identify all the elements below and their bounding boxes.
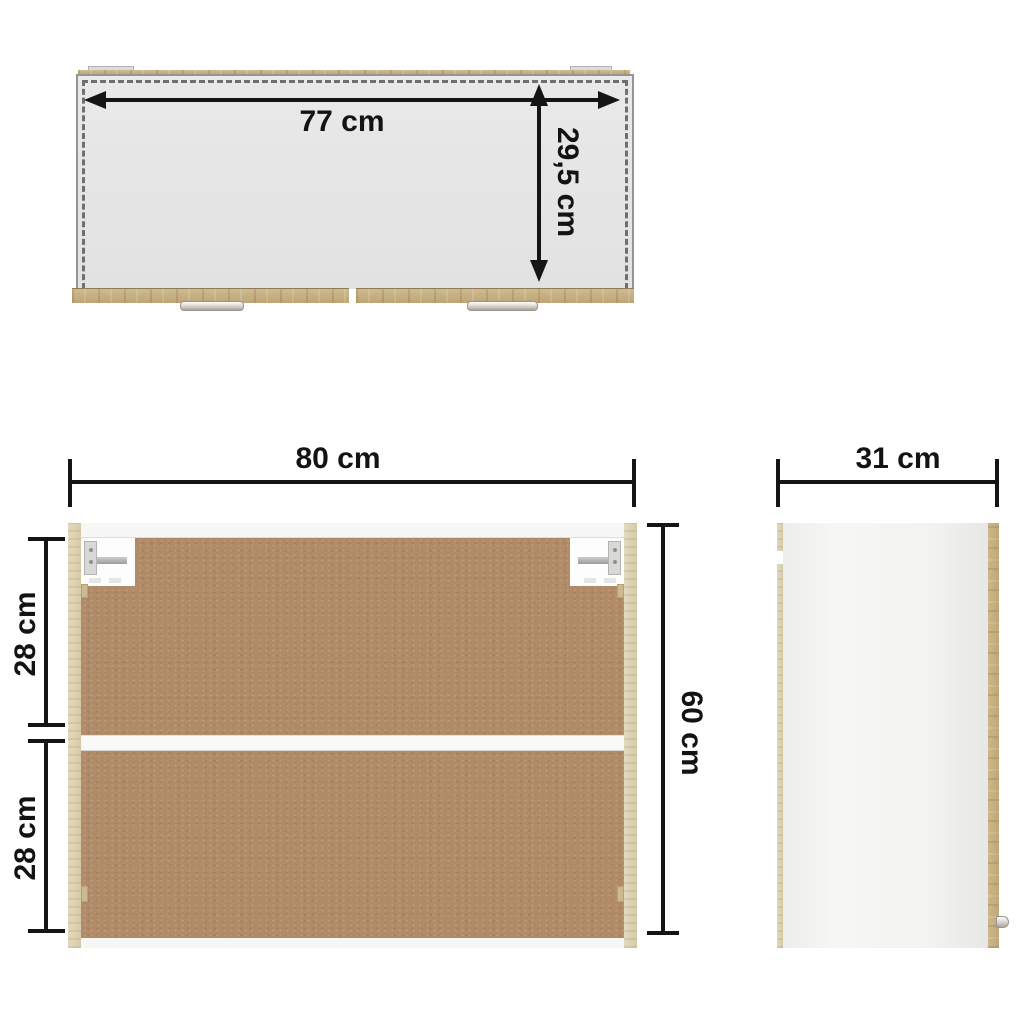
bracket-screw-icon: [613, 560, 617, 564]
bracket-rail: [578, 557, 608, 564]
arrowhead-down-icon: [530, 260, 548, 282]
dimension-line: [44, 739, 48, 933]
height-dimension-label: 60 cm: [676, 690, 706, 775]
bracket-slot: [109, 578, 121, 583]
dimension-tick-right: [632, 459, 636, 507]
bracket-slot: [89, 578, 101, 583]
front-side-panel-right: [624, 523, 637, 948]
upper-compartment-label: 28 cm: [11, 591, 41, 676]
bracket-rail: [97, 557, 127, 564]
front-side-panel-left: [68, 523, 81, 948]
depth-dimension-label: 29,5 cm: [552, 127, 582, 237]
arrowhead-right-icon: [598, 91, 620, 109]
bracket-slot: [604, 578, 616, 583]
middle-shelf: [81, 735, 624, 751]
bracket-screw-icon: [613, 548, 617, 552]
dimension-line: [102, 98, 602, 102]
handle-top-view-left: [180, 301, 244, 311]
side-panel: [783, 523, 988, 948]
dimension-line: [68, 480, 636, 484]
bracket-screw-icon: [89, 560, 93, 564]
front-bottom-board: [81, 938, 624, 948]
mount-bracket-right: [570, 538, 624, 586]
dimension-line: [44, 537, 48, 727]
depth-dimension-label: 31 cm: [855, 444, 940, 474]
dimension-diagram: 77 cm 29,5 cm: [0, 0, 1024, 1024]
dimension-line: [661, 525, 665, 933]
bracket-plate: [84, 541, 97, 575]
mount-bracket-left: [81, 538, 135, 586]
dimension-tick-bottom: [28, 929, 65, 933]
shelf-pin: [81, 584, 88, 598]
arrowhead-up-icon: [530, 84, 548, 106]
bracket-slot: [584, 578, 596, 583]
handle-side-view: [996, 916, 1009, 928]
shelf-pin: [617, 584, 624, 598]
front-top-board: [81, 523, 624, 538]
dimension-line: [537, 104, 541, 262]
lower-compartment-label: 28 cm: [11, 795, 41, 880]
dimension-line: [776, 480, 999, 484]
width-dimension-label: 80 cm: [295, 444, 380, 474]
side-front-edge: [988, 523, 999, 948]
shelf-pin: [617, 886, 624, 902]
dimension-tick-bottom: [28, 723, 65, 727]
shelf-pin: [81, 886, 88, 902]
bracket-plate: [608, 541, 621, 575]
dimension-tick-bottom: [647, 931, 679, 935]
dimension-tick-right: [995, 459, 999, 507]
width-dimension-label: 77 cm: [299, 107, 384, 137]
bracket-screw-icon: [89, 548, 93, 552]
handle-top-view-right: [467, 301, 538, 311]
